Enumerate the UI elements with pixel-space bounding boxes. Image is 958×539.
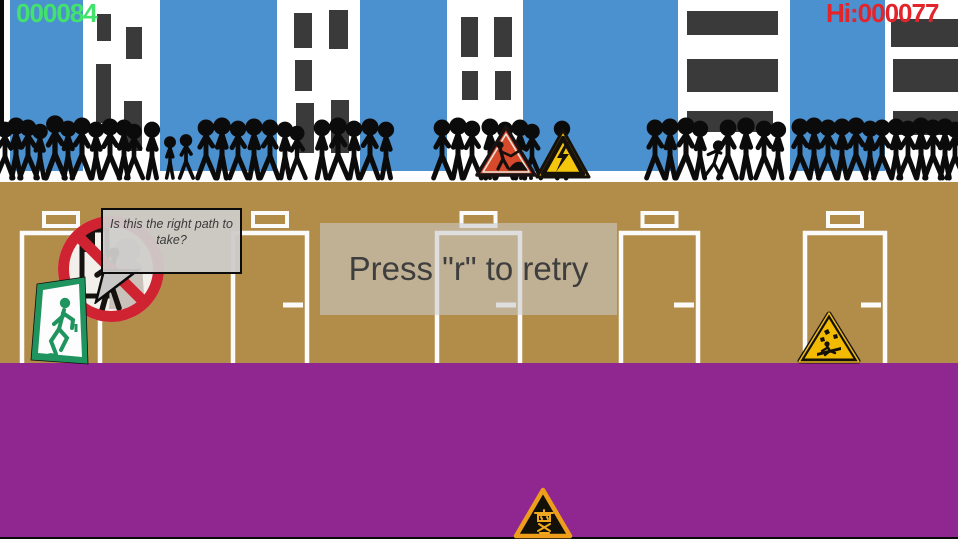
- electric-hazard-sign-icon: [535, 128, 591, 180]
- speech-bubble: Is this the right path to take?: [101, 208, 242, 274]
- speech-bubble-tail: [90, 269, 142, 304]
- retry-prompt: Press "r" to retry: [349, 250, 589, 288]
- retry-overlay: Press "r" to retry: [320, 223, 617, 315]
- falling-debris-sign-icon: [797, 311, 861, 365]
- exit-sign-icon: [28, 272, 91, 371]
- fog-sign-icon: [513, 487, 573, 539]
- score-counter: 000084: [16, 0, 97, 26]
- speech-text: Is this the right path to take?: [110, 217, 233, 247]
- ground: [0, 363, 958, 537]
- game-screen[interactable]: Is this the right path to take? Press "r…: [0, 0, 958, 539]
- hi-score-counter: Hi:000077: [826, 0, 938, 26]
- construction-sign-icon: [474, 124, 538, 180]
